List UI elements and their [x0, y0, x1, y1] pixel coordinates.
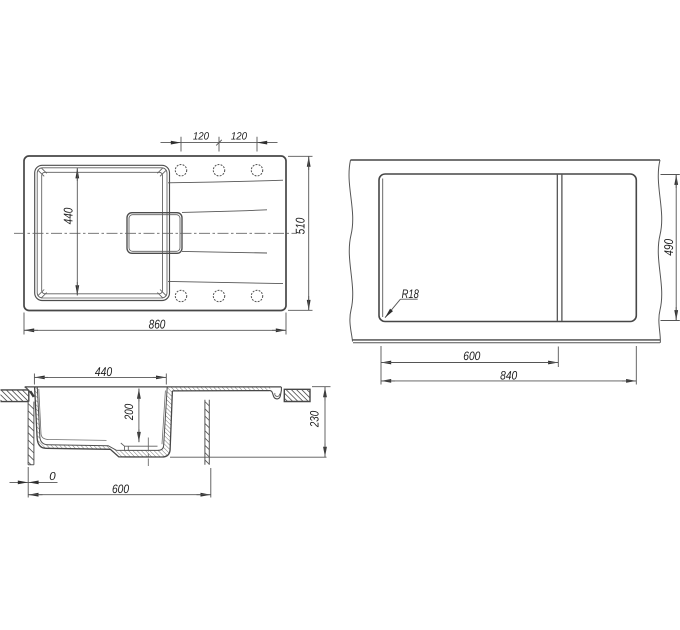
svg-text:0: 0 — [49, 471, 56, 483]
svg-text:440: 440 — [61, 208, 75, 225]
svg-text:600: 600 — [463, 349, 480, 363]
svg-text:490: 490 — [662, 239, 676, 256]
svg-text:200: 200 — [122, 404, 136, 421]
svg-text:510: 510 — [294, 218, 308, 235]
svg-text:440: 440 — [95, 365, 112, 379]
svg-text:230: 230 — [308, 411, 322, 428]
svg-text:860: 860 — [149, 317, 166, 331]
svg-text:R18: R18 — [402, 287, 419, 301]
svg-text:840: 840 — [500, 369, 517, 383]
svg-text:120: 120 — [193, 131, 209, 143]
svg-text:120: 120 — [231, 131, 247, 143]
svg-text:600: 600 — [112, 482, 129, 496]
